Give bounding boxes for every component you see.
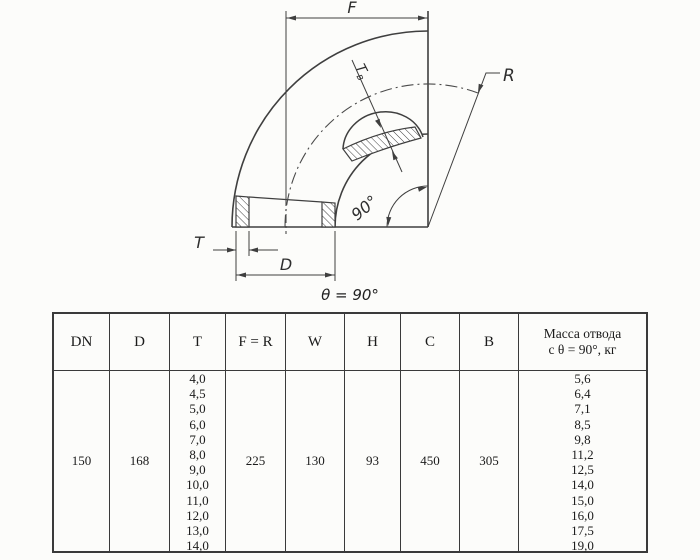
d-label: D	[280, 255, 292, 274]
catalog-page: F T D R 90°	[0, 0, 700, 560]
column-t: T 4,0 4,5 5,0 6,0 7,0 8,0 9,0 10,0 11,0 …	[170, 314, 226, 551]
cell-mass-values: 5,6 6,4 7,1 8,5 9,8 11,2 12,5 14,0 15,0 …	[519, 371, 646, 553]
cell-fr: 225	[226, 371, 285, 551]
column-mass: Масса отвода с θ = 90°, кг 5,6 6,4 7,1 8…	[519, 314, 646, 551]
angle-label: 90°	[347, 191, 381, 224]
cell-c: 450	[401, 371, 459, 551]
column-dn: DN 150	[54, 314, 110, 551]
header-c: C	[401, 314, 459, 371]
header-b: B	[460, 314, 518, 371]
t-label: T	[194, 233, 205, 252]
column-h: H 93	[345, 314, 401, 551]
cell-b: 305	[460, 371, 518, 551]
cell-w: 130	[286, 371, 344, 551]
r-label: R	[503, 66, 515, 86]
header-w: W	[286, 314, 344, 371]
angle-arc	[387, 186, 428, 227]
upper-opening	[343, 112, 423, 161]
cell-h: 93	[345, 371, 400, 551]
column-b: B 305	[460, 314, 519, 551]
theta-note: θ = 90°	[321, 286, 379, 304]
cell-d: 168	[110, 371, 169, 551]
header-d: D	[110, 314, 169, 371]
header-h: H	[345, 314, 400, 371]
header-mass: Масса отвода с θ = 90°, кг	[519, 314, 646, 371]
cell-dn: 150	[54, 371, 109, 551]
bend-centerline-arc	[285, 84, 478, 227]
t-extension-lines	[236, 231, 249, 256]
cell-t-values: 4,0 4,5 5,0 6,0 7,0 8,0 9,0 10,0 11,0 12…	[170, 371, 225, 553]
header-mass-line1: Масса отвода	[544, 326, 622, 342]
header-mass-line2: с θ = 90°, кг	[549, 342, 617, 358]
header-t: T	[170, 314, 225, 371]
column-w: W 130	[286, 314, 345, 551]
r-leader	[428, 73, 500, 227]
elbow-drawing: F T D R 90°	[0, 0, 700, 310]
header-fr: F = R	[226, 314, 285, 371]
dimension-angle	[386, 185, 428, 227]
column-fr: F = R 225	[226, 314, 286, 551]
header-dn: DN	[54, 314, 109, 371]
column-c: C 450	[401, 314, 460, 551]
f-label: F	[347, 0, 357, 17]
centerlines	[285, 84, 478, 234]
dimension-f	[286, 11, 428, 197]
column-d: D 168	[110, 314, 170, 551]
wall-section-right	[322, 202, 335, 227]
dimensions-table: DN 150 D 168 T 4,0 4,5 5,0 6,0 7,0 8,0 9…	[52, 312, 648, 553]
wall-section-left	[236, 196, 249, 227]
tv-label: Tв	[350, 62, 373, 83]
dimension-r	[428, 73, 500, 227]
dimension-t	[213, 231, 278, 256]
